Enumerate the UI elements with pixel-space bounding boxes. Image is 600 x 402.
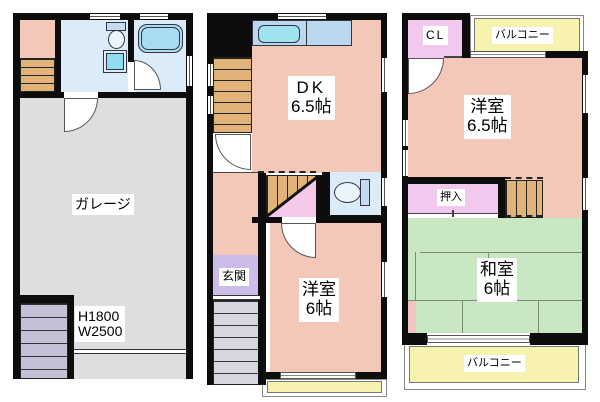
wall-segment [55,20,61,92]
wall-segment [68,295,74,379]
entrance-steps [213,300,260,385]
window [208,96,213,114]
wall-segment [13,295,74,303]
window [382,262,387,297]
wall-segment [498,177,505,218]
stairs-garage [20,303,68,379]
kitchen-sink-icon [258,25,300,43]
wall-segment [13,92,64,98]
floor-strip [408,300,416,333]
stair-dash [505,215,543,217]
wall-segment [128,20,134,62]
garage-label-text: ガレージ [75,197,131,212]
dk-size-text: 6.5帖 [291,98,332,117]
washitsu-label-text: 和室 [480,261,514,280]
toilet2-tank-icon [360,179,370,206]
stairs-1f-up [20,58,55,94]
wall-segment [266,372,280,379]
yoshitsu6-label-text: 洋室 [302,281,336,300]
garage-label: ガレージ [72,194,134,215]
window [403,120,408,146]
stairs-2f-up [213,57,252,133]
balcony-bottom-label: バルコニー [464,355,525,372]
washbasin-icon [103,50,127,73]
garage-note: H1800 W2500 [75,306,125,342]
dk-label-text: DK [297,79,327,98]
washitsu-label: 和室 6帖 [477,258,517,302]
tatami-line [420,252,582,253]
wall-segment [322,215,387,223]
stair-boundary-dash [258,171,316,173]
garage-note-line2: W2500 [78,324,122,339]
wall-segment [402,13,468,20]
yoshitsu6-label: 洋室 6帖 [299,278,339,322]
void-block [213,20,252,57]
oshiire-tick [452,210,454,217]
window [140,14,168,19]
sliding-window [427,335,530,343]
toilet-icon [108,30,125,49]
toilet2-icon [334,182,361,203]
wall-segment [13,13,20,379]
washbasin-bowl [106,53,124,70]
window [208,64,213,86]
bathtub-icon [138,24,183,53]
yoshitsu65-size-text: 6.5帖 [467,117,508,136]
tatami-line [462,300,463,333]
sliding-window [470,51,546,58]
entrance-door-line [213,295,260,300]
balcony-bottom-label-text: バルコニー [467,357,522,369]
cl-label-text: CL [426,29,445,42]
wall-segment [258,173,266,385]
hall-strip [213,173,260,255]
genkan-label-text: 玄関 [222,270,246,283]
window [583,75,588,113]
yoshitsu65-label-text: 洋室 [470,98,504,117]
balcony-top-label: バルコニー [492,27,553,44]
wall-segment [402,177,505,184]
wall-segment [462,13,470,58]
yoshitsu6-size-text: 6帖 [306,300,332,319]
garage-shutter-line [74,349,186,354]
washitsu-size-text: 6帖 [484,280,510,299]
tatami-line [538,300,539,333]
wall-segment [316,217,330,223]
sliding-window [280,372,356,379]
cl-label: CL [423,26,448,45]
window [90,14,120,19]
counter-divider [306,21,307,45]
wall-segment [530,333,588,345]
window [382,58,387,92]
balcony-top-label-text: バルコニー [495,29,550,41]
wall-segment [98,92,193,98]
window [187,56,192,86]
balcony2 [267,381,382,393]
oshiire-label-text: 押入 [440,191,462,203]
boundary-line [213,172,258,173]
window [278,14,326,19]
window [382,178,387,206]
wall-segment [322,172,330,215]
stair-landing [20,20,55,60]
window [583,178,588,210]
wall-segment [356,372,387,379]
wall-segment [402,333,427,345]
yoshitsu65-label: 洋室 6.5帖 [464,95,511,139]
garage-note-line1: H1800 [78,309,119,324]
oshiire-label: 押入 [437,189,465,206]
wall-segment [252,217,282,223]
genkan-label: 玄関 [219,268,249,286]
tatami-line [415,252,416,300]
stairs-diagonal [266,175,316,217]
stair-dash [505,177,543,179]
dk-label: DK 6.5帖 [288,76,335,120]
floor-plan: ガレージ H1800 W2500 [0,0,600,402]
window [403,150,408,176]
kitchen-counter [252,20,352,46]
bathtub-inner [141,27,180,50]
stairs-3f [505,180,543,218]
